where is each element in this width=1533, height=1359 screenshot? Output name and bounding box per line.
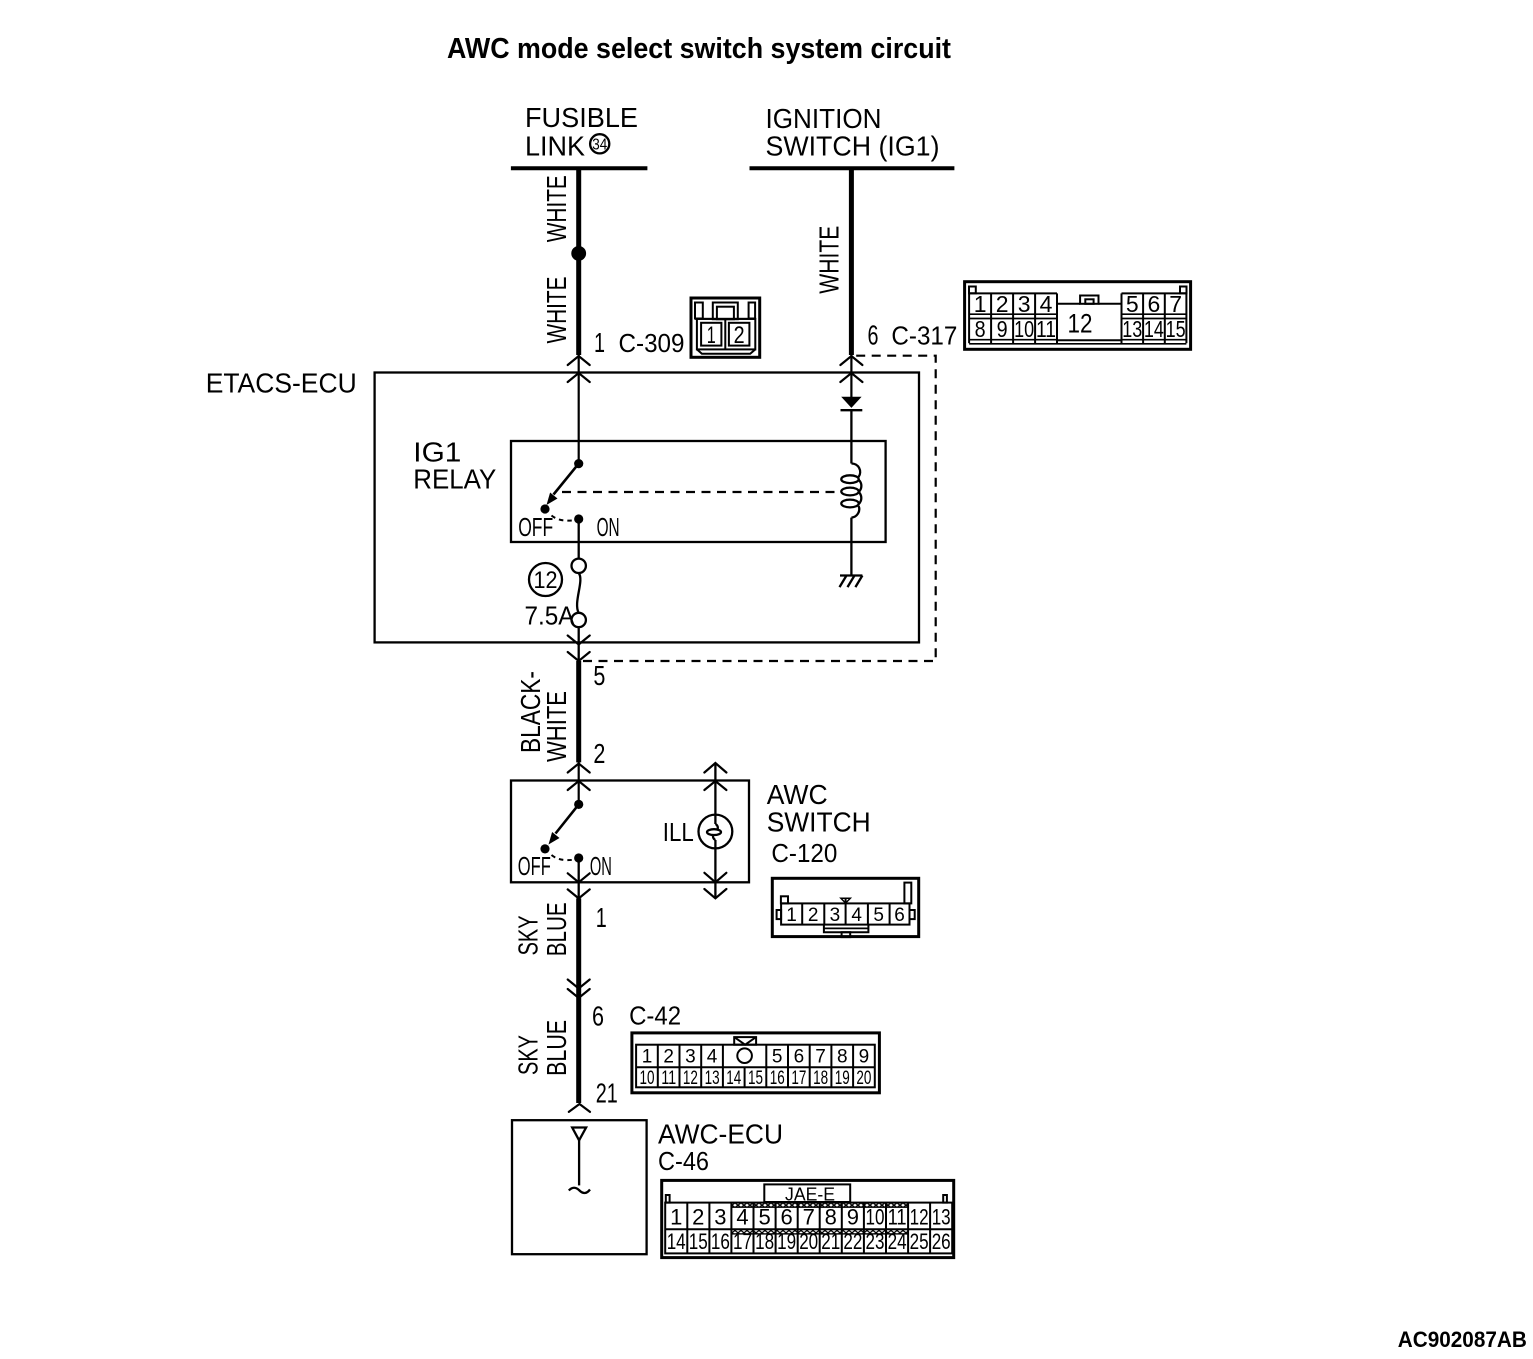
svg-text:SWITCH: SWITCH [767, 806, 871, 837]
svg-text:AC902087AB: AC902087AB [1398, 1327, 1527, 1352]
svg-text:5: 5 [593, 660, 605, 691]
svg-text:7.5A: 7.5A [525, 600, 576, 630]
svg-text:JAE-E: JAE-E [785, 1185, 835, 1205]
svg-text:SKY: SKY [513, 915, 544, 955]
svg-text:5: 5 [1126, 291, 1139, 317]
svg-text:6: 6 [894, 905, 905, 926]
svg-text:ON: ON [590, 851, 612, 881]
svg-text:7: 7 [815, 1047, 826, 1068]
svg-text:BLUE: BLUE [541, 902, 572, 956]
svg-text:19: 19 [777, 1229, 796, 1254]
svg-text:23: 23 [866, 1229, 885, 1254]
svg-text:1: 1 [786, 905, 797, 926]
svg-text:8: 8 [825, 1205, 837, 1230]
svg-text:1: 1 [596, 902, 607, 933]
svg-text:21: 21 [821, 1229, 840, 1254]
svg-text:14: 14 [1144, 316, 1164, 342]
svg-text:26: 26 [932, 1229, 951, 1254]
svg-text:9: 9 [847, 1205, 859, 1230]
svg-text:17: 17 [733, 1229, 752, 1254]
svg-text:ETACS-ECU: ETACS-ECU [206, 368, 357, 399]
svg-text:12: 12 [1068, 309, 1093, 339]
svg-text:ON: ON [597, 512, 620, 542]
svg-text:9: 9 [997, 316, 1008, 342]
svg-text:12: 12 [534, 567, 558, 594]
svg-text:BLUE: BLUE [541, 1020, 572, 1076]
svg-text:5: 5 [772, 1047, 783, 1068]
svg-text:11: 11 [661, 1068, 676, 1089]
svg-text:2: 2 [692, 1205, 704, 1230]
svg-text:9: 9 [859, 1047, 870, 1068]
svg-text:RELAY: RELAY [413, 464, 496, 495]
svg-text:10: 10 [866, 1205, 885, 1230]
svg-text:11: 11 [1036, 316, 1056, 342]
svg-text:C-309: C-309 [619, 328, 685, 358]
svg-text:2: 2 [808, 905, 819, 926]
svg-text:7: 7 [803, 1205, 815, 1230]
svg-text:6: 6 [794, 1047, 805, 1068]
svg-text:4: 4 [1040, 291, 1053, 317]
svg-text:2: 2 [996, 291, 1009, 317]
svg-text:2: 2 [734, 322, 745, 349]
svg-text:WHITE: WHITE [814, 226, 845, 294]
svg-text:3: 3 [714, 1205, 726, 1230]
svg-text:13: 13 [705, 1068, 720, 1089]
svg-text:C-46: C-46 [658, 1146, 709, 1176]
svg-text:14: 14 [667, 1229, 686, 1254]
svg-text:10: 10 [1014, 316, 1034, 342]
svg-text:1: 1 [707, 322, 716, 349]
svg-text:7: 7 [1169, 291, 1182, 317]
svg-text:C-317: C-317 [891, 321, 957, 351]
svg-text:AWC mode select switch system: AWC mode select switch system circuit [447, 33, 951, 65]
svg-text:13: 13 [1122, 316, 1142, 342]
svg-text:15: 15 [1166, 316, 1186, 342]
svg-text:15: 15 [689, 1229, 708, 1254]
svg-text:12: 12 [683, 1068, 698, 1089]
svg-text:SKY: SKY [513, 1035, 544, 1075]
svg-text:C-42: C-42 [629, 1001, 681, 1031]
svg-text:15: 15 [748, 1068, 763, 1089]
svg-text:3: 3 [1018, 291, 1031, 317]
svg-text:3: 3 [685, 1047, 696, 1068]
svg-text:1: 1 [974, 291, 987, 317]
svg-text:IGNITION: IGNITION [766, 103, 882, 134]
svg-text:1: 1 [642, 1047, 653, 1068]
svg-text:12: 12 [910, 1205, 929, 1230]
svg-text:21: 21 [596, 1078, 618, 1109]
svg-text:24: 24 [888, 1229, 907, 1254]
svg-text:22: 22 [843, 1229, 862, 1254]
svg-text:8: 8 [975, 316, 986, 342]
svg-text:16: 16 [711, 1229, 730, 1254]
svg-text:LINK: LINK [525, 131, 585, 162]
svg-text:17: 17 [791, 1068, 806, 1089]
svg-text:20: 20 [799, 1229, 818, 1254]
svg-text:20: 20 [856, 1068, 871, 1089]
svg-text:18: 18 [755, 1229, 774, 1254]
svg-text:6: 6 [1148, 291, 1161, 317]
svg-text:10: 10 [640, 1068, 655, 1089]
svg-text:SWITCH (IG1): SWITCH (IG1) [766, 131, 940, 162]
svg-text:ILL: ILL [663, 817, 694, 847]
svg-text:34: 34 [592, 137, 607, 154]
svg-text:2: 2 [663, 1047, 674, 1068]
svg-text:18: 18 [813, 1068, 828, 1089]
svg-text:AWC: AWC [767, 779, 828, 810]
svg-text:19: 19 [835, 1068, 850, 1089]
svg-text:6: 6 [868, 320, 879, 351]
svg-text:1: 1 [594, 327, 605, 358]
svg-text:WHITE: WHITE [541, 277, 572, 344]
svg-text:6: 6 [780, 1205, 792, 1230]
svg-text:25: 25 [910, 1229, 929, 1254]
svg-text:1: 1 [670, 1205, 682, 1230]
svg-text:OFF: OFF [518, 512, 553, 542]
svg-text:6: 6 [592, 1000, 604, 1031]
svg-text:11: 11 [888, 1205, 907, 1230]
svg-text:2: 2 [593, 738, 605, 769]
svg-text:OFF: OFF [518, 851, 551, 881]
svg-text:4: 4 [851, 905, 862, 926]
svg-text:4: 4 [736, 1205, 748, 1230]
svg-text:4: 4 [707, 1047, 718, 1068]
svg-text:5: 5 [758, 1205, 770, 1230]
svg-text:WHITE: WHITE [541, 175, 572, 242]
svg-text:13: 13 [932, 1205, 951, 1230]
svg-text:FUSIBLE: FUSIBLE [525, 102, 638, 133]
svg-text:8: 8 [837, 1047, 848, 1068]
svg-text:16: 16 [770, 1068, 785, 1089]
svg-text:5: 5 [873, 905, 884, 926]
svg-text:3: 3 [830, 905, 841, 926]
svg-text:AWC-ECU: AWC-ECU [658, 1118, 783, 1149]
svg-text:C-120: C-120 [771, 838, 837, 868]
svg-text:WHITE: WHITE [541, 691, 572, 762]
svg-text:14: 14 [726, 1068, 741, 1089]
